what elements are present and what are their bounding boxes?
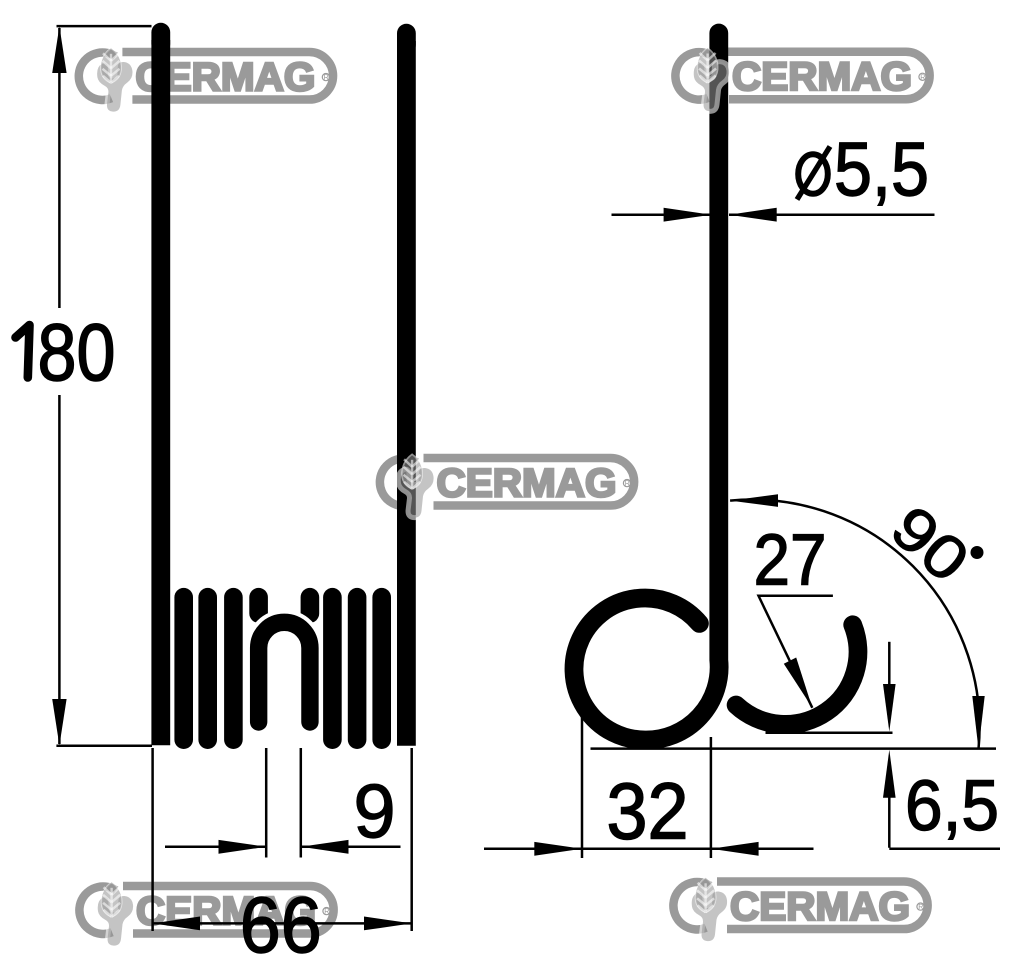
svg-text:9: 9 bbox=[353, 770, 395, 855]
svg-text:32: 32 bbox=[607, 767, 689, 856]
svg-text:27: 27 bbox=[754, 521, 827, 601]
svg-text:80: 80 bbox=[38, 308, 116, 398]
svg-text:6,5: 6,5 bbox=[905, 767, 999, 846]
svg-text:5,5: 5,5 bbox=[834, 128, 929, 213]
svg-text:66: 66 bbox=[240, 880, 322, 968]
